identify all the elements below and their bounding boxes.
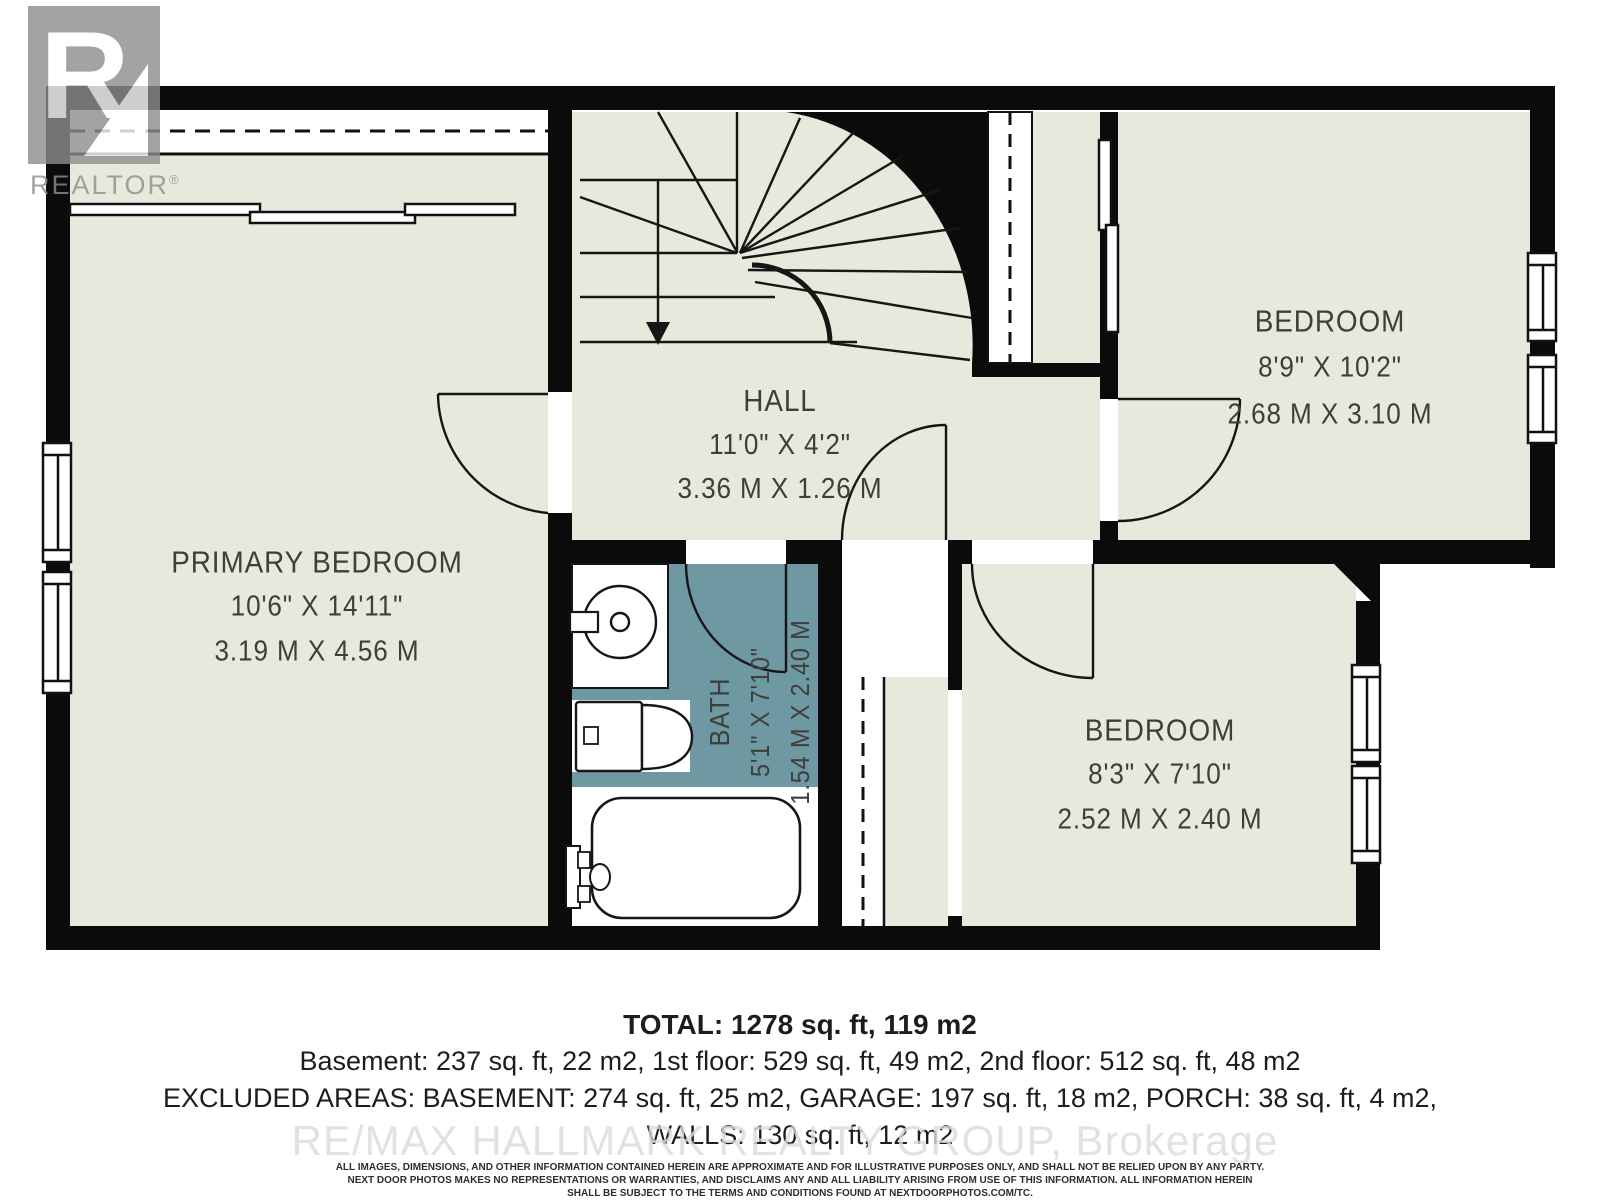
brokerage-watermark: RE/MAX HALLMARK REALTY GROUP, Brokerage	[0, 1117, 1570, 1165]
corridor-floor	[1032, 112, 1100, 363]
sink	[570, 564, 668, 688]
window-left-1	[43, 443, 71, 562]
wall-stub	[948, 916, 962, 926]
wall-bedrooms-divider	[1093, 540, 1530, 564]
bathtub	[566, 798, 800, 918]
room-dims-metric: 2.68 M X 3.10 M	[1227, 392, 1432, 439]
realtor-logo-icon: R	[28, 6, 160, 164]
label-hall: HALL 11'0" X 4'2" 3.36 M X 1.26 M	[677, 379, 882, 511]
window-panel	[70, 204, 260, 215]
toilet	[572, 700, 692, 772]
stairwell-strip-upper	[988, 112, 1032, 363]
room-dims-metric: 3.19 M X 4.56 M	[171, 630, 463, 675]
window-right-top-2	[1528, 355, 1556, 443]
wall-closet-left	[818, 540, 842, 926]
label-bath: BATH 5'1" X 7'10" 1.54 M X 2.40 M	[700, 619, 820, 804]
registered-mark: ®	[169, 172, 181, 187]
label-bedroom-top: BEDROOM 8'9" X 10'2" 2.68 M X 3.10 M	[1227, 298, 1432, 439]
room-name: BEDROOM	[1227, 298, 1432, 345]
opening-strip	[948, 690, 962, 916]
room-name: BEDROOM	[1057, 708, 1262, 753]
excluded-areas: EXCLUDED AREAS: BASEMENT: 274 sq. ft, 25…	[0, 1080, 1600, 1117]
door-opening-bedroom-top	[1100, 399, 1118, 521]
disclaimer-line: ALL IMAGES, DIMENSIONS, AND OTHER INFORM…	[0, 1161, 1600, 1174]
label-bedroom-bottom: BEDROOM 8'3" X 7'10" 2.52 M X 2.40 M	[1057, 708, 1262, 843]
wall-corridor-bottom	[972, 363, 1100, 377]
room-dims-imperial: 11'0" X 4'2"	[677, 423, 882, 467]
room-dims-imperial: 5'1" X 7'10"	[740, 619, 780, 804]
stairwell-strip-lower	[842, 677, 884, 926]
window-right-top-1	[1528, 253, 1556, 341]
window-panel	[405, 204, 515, 215]
room-name: PRIMARY BEDROOM	[171, 540, 463, 585]
door-opening-primary	[548, 392, 572, 513]
room-dims-metric: 2.52 M X 2.40 M	[1057, 798, 1262, 843]
floor-plan-page: PRIMARY BEDROOM 10'6" X 14'11" 3.19 M X …	[0, 0, 1600, 1200]
room-dims-imperial: 8'3" X 7'10"	[1057, 753, 1262, 798]
door-opening-bedroom-bottom	[972, 540, 1093, 564]
room-dims-imperial: 8'9" X 10'2"	[1227, 345, 1432, 392]
window-panel	[250, 212, 415, 223]
wall-bottom	[46, 926, 1380, 950]
strip-floor	[884, 677, 948, 926]
closet	[842, 540, 948, 663]
wall-closet-right	[948, 540, 962, 690]
disclaimer: ALL IMAGES, DIMENSIONS, AND OTHER INFORM…	[0, 1161, 1600, 1200]
door-opening-bath	[686, 540, 786, 564]
room-dims-metric: 1.54 M X 2.40 M	[780, 619, 820, 804]
room-dims-metric: 3.36 M X 1.26 M	[677, 467, 882, 511]
realtor-logo-text: REALTOR®	[30, 170, 181, 201]
window-right-bottom-2	[1352, 766, 1380, 863]
label-primary-bedroom: PRIMARY BEDROOM 10'6" X 14'11" 3.19 M X …	[171, 540, 463, 675]
hall-extension-floor	[988, 377, 1100, 540]
disclaimer-line: SHALL BE SUBJECT TO THE TERMS AND CONDIT…	[0, 1187, 1600, 1200]
disclaimer-line: NEXT DOOR PHOTOS MAKES NO REPRESENTATION…	[0, 1174, 1600, 1187]
wall-bath-top	[572, 540, 686, 564]
room-dims-imperial: 10'6" X 14'11"	[171, 585, 463, 630]
wall-top	[46, 86, 1555, 110]
window-left-2	[43, 572, 71, 693]
window-right-bottom-1	[1352, 665, 1380, 762]
total-area: TOTAL: 1278 sq. ft, 119 m2	[0, 1006, 1600, 1043]
room-name: BATH	[700, 619, 740, 804]
room-name: HALL	[677, 379, 882, 423]
floor-areas: Basement: 237 sq. ft, 22 m2, 1st floor: …	[0, 1043, 1600, 1080]
realtor-logo: R REALTOR®	[28, 6, 160, 164]
